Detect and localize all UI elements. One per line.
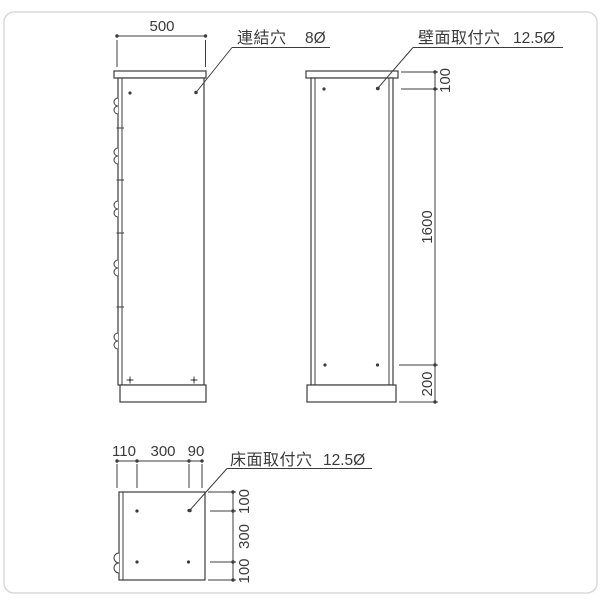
hinge-icon — [114, 201, 118, 217]
wall-hole-size: 12.5Ø — [513, 30, 555, 47]
side-view-body — [118, 78, 204, 385]
dim-200-label: 200 — [419, 371, 436, 396]
back-view-top-cap — [306, 71, 398, 78]
connect-hole-size: 8Ø — [305, 30, 326, 47]
dim-1600-label: 1600 — [419, 210, 436, 243]
hinge-icon — [114, 148, 118, 164]
hinge-icon — [114, 260, 118, 276]
bottom-right-dimension-chain — [208, 490, 236, 581]
image-frame-border — [4, 12, 597, 593]
bottom-top-dimension-chain — [115, 459, 203, 488]
wall-hole-leader — [376, 48, 563, 91]
dim-300-right-label: 300 — [236, 524, 253, 549]
bottom-view-body — [119, 492, 205, 580]
dim-100-lower-label: 100 — [236, 558, 253, 583]
back-view: 壁面取付穴 12.5Ø 100 1600 200 — [306, 28, 563, 404]
dim-100-upper-label: 100 — [236, 489, 253, 514]
locker-dimension-drawing: 500 連結穴 8Ø 壁面取付穴 12 — [0, 0, 600, 600]
wall-hole-label: 壁面取付穴 — [418, 28, 501, 47]
hinge-icon — [114, 333, 118, 349]
floor-hole-size: 12.5Ø — [323, 452, 365, 469]
dim-90-label: 90 — [188, 443, 205, 460]
connect-hole-label: 連結穴 — [237, 29, 287, 47]
dim-110-label: 110 — [112, 443, 136, 460]
side-view-base — [120, 385, 206, 402]
technical-drawing-page: 500 連結穴 8Ø 壁面取付穴 12 — [0, 0, 600, 600]
side-view-top-cap — [114, 71, 206, 78]
dim-300-top-label: 300 — [150, 443, 175, 460]
width-dimension — [115, 34, 207, 67]
side-view: 500 連結穴 8Ø — [114, 18, 330, 402]
hinge-icon — [114, 553, 119, 573]
dim-500-label: 500 — [149, 18, 174, 35]
hinge-icon — [114, 98, 118, 114]
back-view-body — [311, 78, 393, 385]
back-view-base — [307, 385, 396, 402]
dim-100-top-label: 100 — [437, 68, 454, 93]
floor-hole-label: 床面取付穴 — [230, 451, 313, 469]
floor-hole-leader — [188, 469, 372, 513]
bottom-plan-view: 110 300 90 床面取付穴 12.5Ø 100 300 100 — [112, 443, 372, 584]
